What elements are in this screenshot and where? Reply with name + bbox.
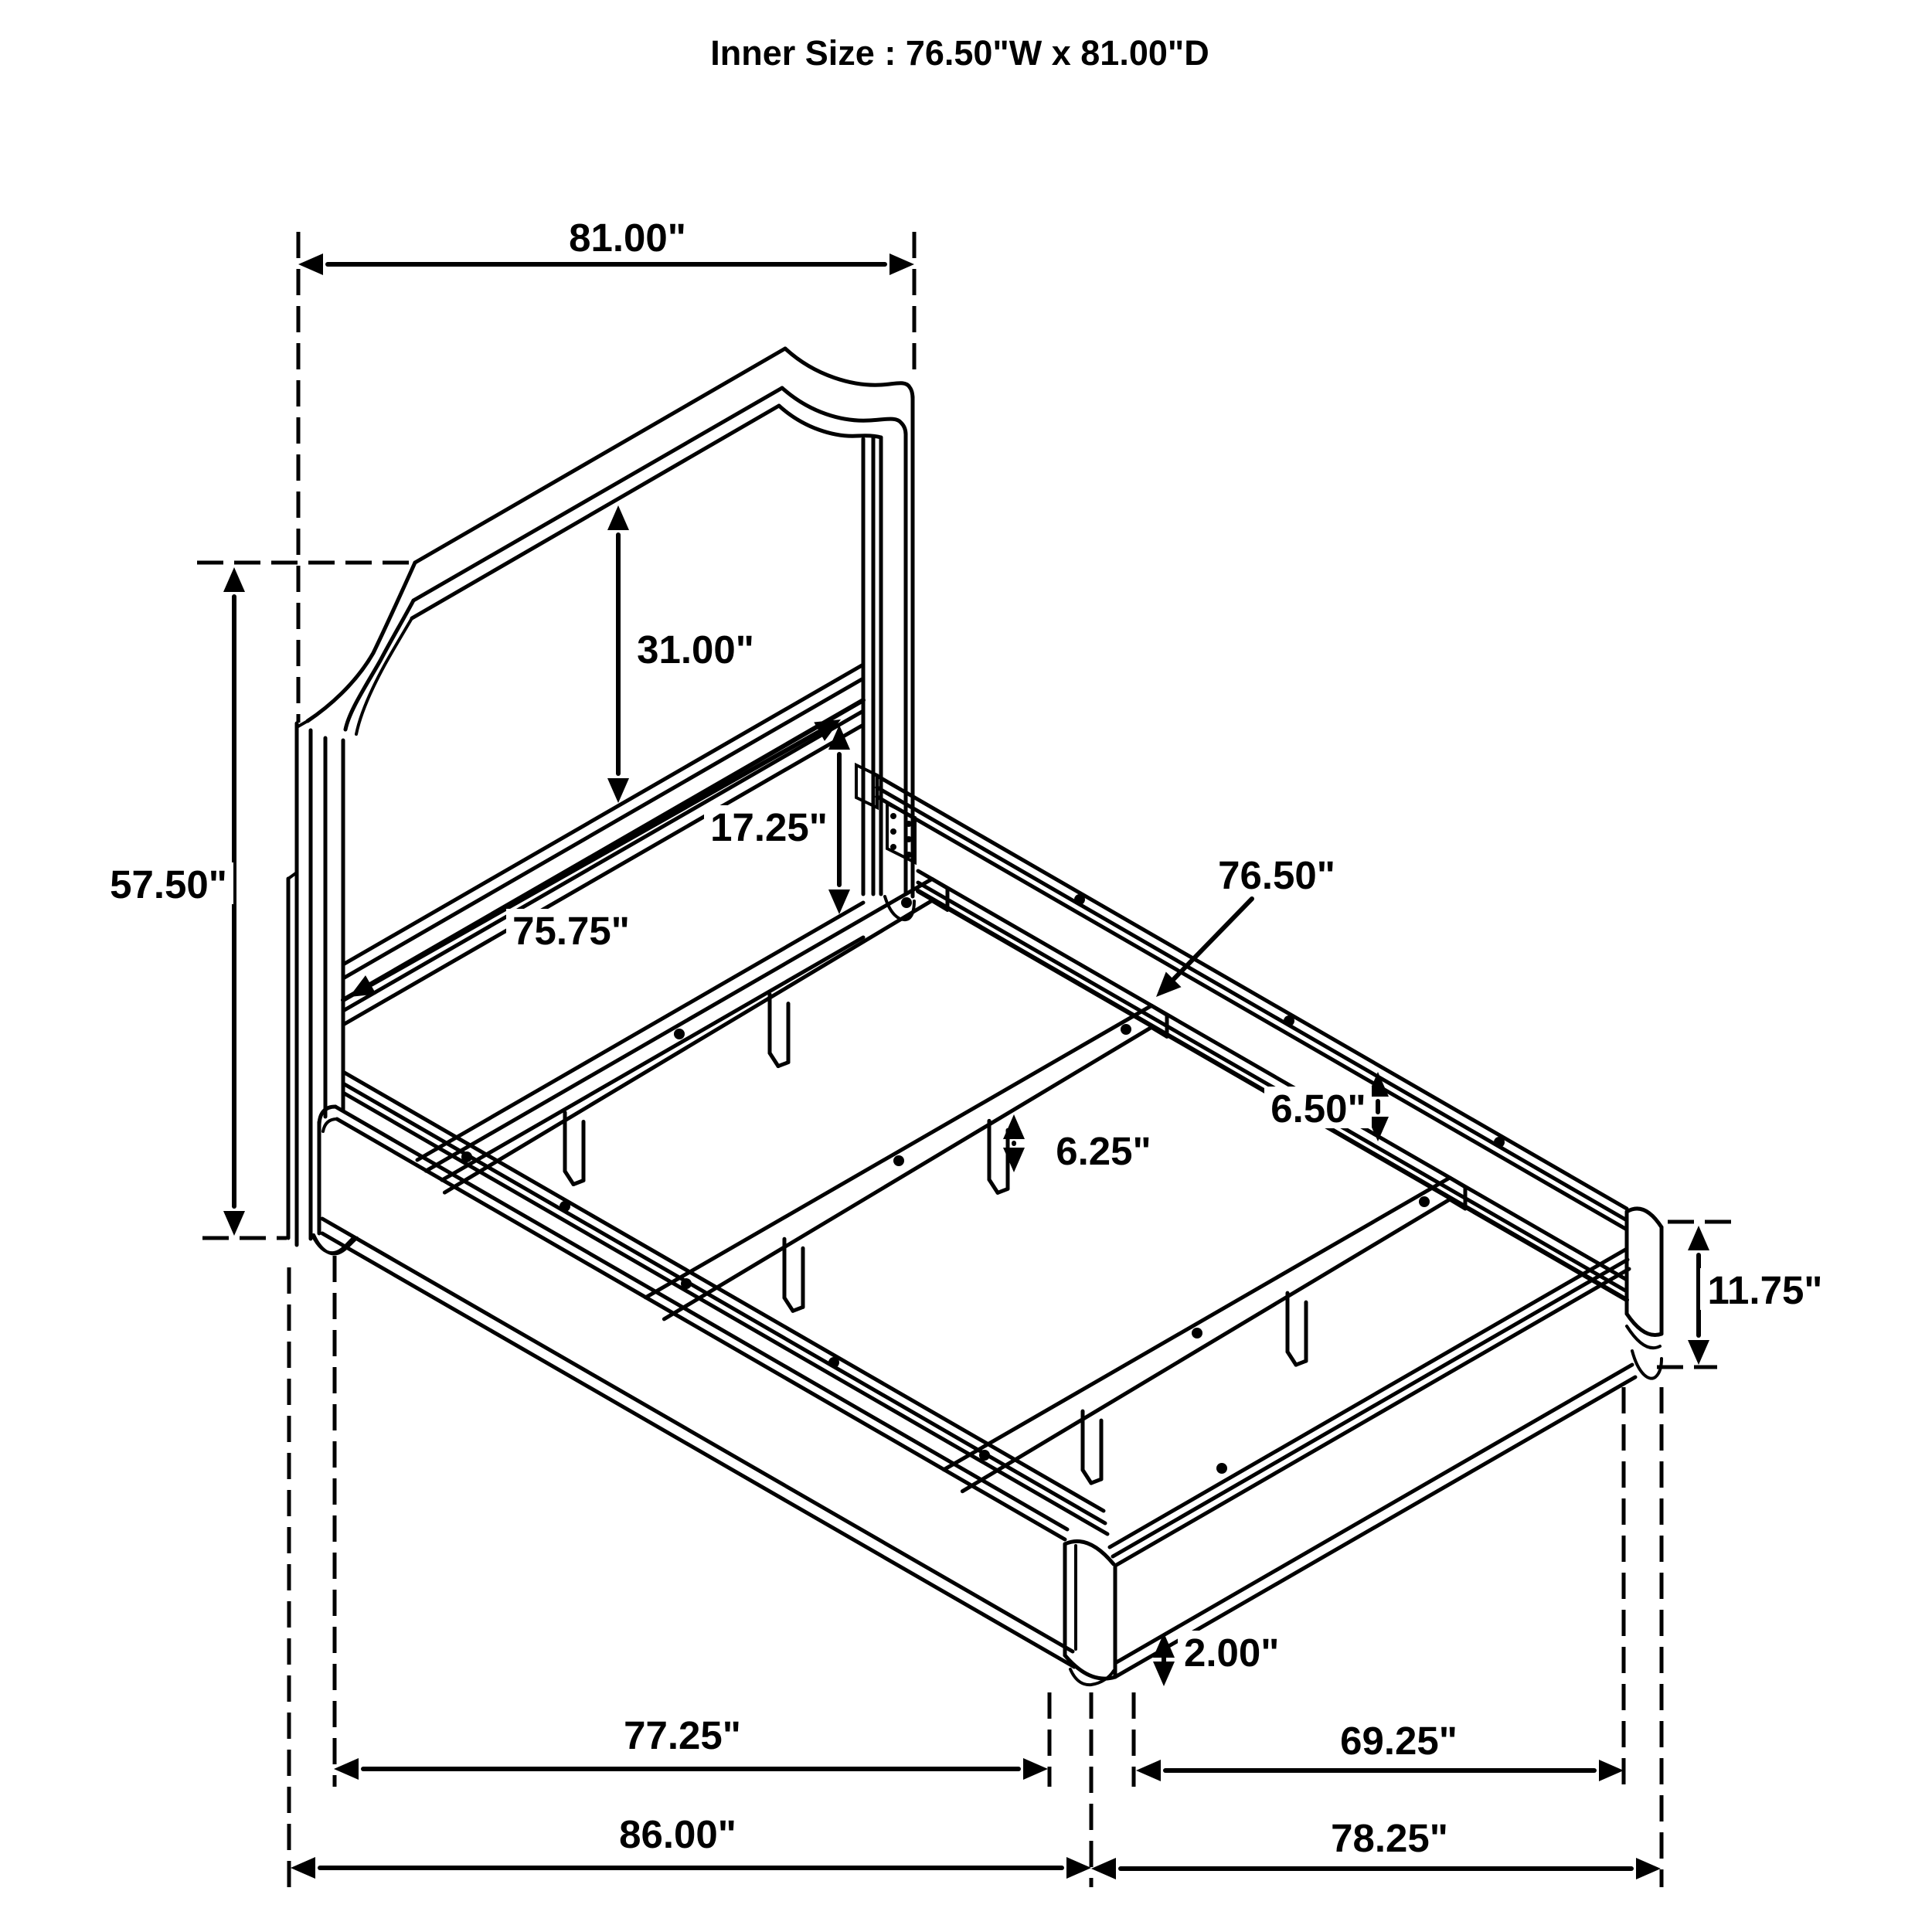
svg-text:75.75": 75.75" [512,909,630,953]
svg-text:2.00": 2.00" [1184,1631,1279,1675]
svg-text:57.50": 57.50" [110,862,227,906]
svg-text:69.25": 69.25" [1340,1719,1458,1763]
svg-text:77.25": 77.25" [624,1713,741,1757]
svg-text:86.00": 86.00" [619,1812,736,1856]
svg-text:6.25": 6.25" [1056,1129,1151,1173]
svg-text:81.00": 81.00" [569,216,686,260]
svg-text:6.50": 6.50" [1270,1087,1366,1131]
svg-text:Inner Size : 76.50"W x 81.00"D: Inner Size : 76.50"W x 81.00"D [710,33,1209,73]
svg-text:31.00": 31.00" [637,628,754,672]
svg-text:76.50": 76.50" [1218,853,1335,897]
svg-text:17.25": 17.25" [710,805,828,849]
svg-text:78.25": 78.25" [1331,1816,1448,1860]
svg-text:11.75": 11.75" [1708,1268,1823,1312]
